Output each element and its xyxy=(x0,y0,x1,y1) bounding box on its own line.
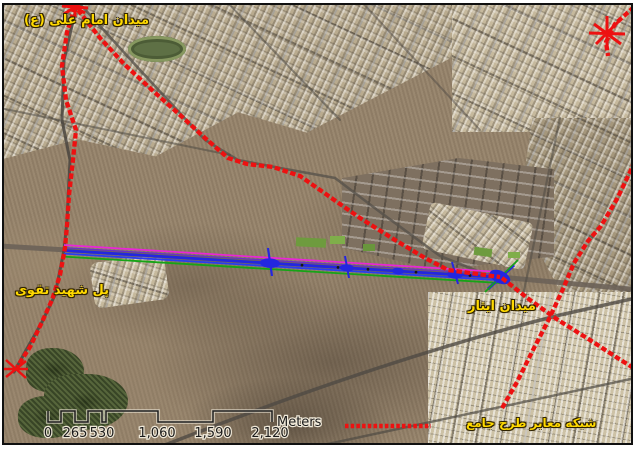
map-frame: 0 265 530 1,060 1,590 2,120 Meters میدان… xyxy=(2,3,633,445)
star-southwest xyxy=(4,360,28,378)
scalebar-tick-1: 265 xyxy=(63,426,88,441)
scalebar-tick-4: 1,590 xyxy=(194,426,231,441)
route-central xyxy=(78,10,500,277)
scalebar-unit: Meters xyxy=(277,415,322,430)
scalebar-tick-3: 1,060 xyxy=(138,426,175,441)
label-imam-ali-square: میدان امام علی (ع) xyxy=(24,14,149,28)
label-shahid-taghavi-bridge: پل شهید تقوی xyxy=(15,284,109,298)
map-overlay: 0 265 530 1,060 1,590 2,120 Meters xyxy=(2,3,633,445)
legend-network-label: شبکه معابر طرح جامع xyxy=(466,417,596,430)
label-isar-square: میدان ایثار xyxy=(468,300,536,314)
road-network-base xyxy=(2,3,633,445)
satellite-canvas: 0 265 530 1,060 1,590 2,120 Meters میدان… xyxy=(2,3,633,445)
scalebar-tick-0: 0 xyxy=(44,426,52,441)
scalebar-tick-2: 530 xyxy=(90,426,115,441)
